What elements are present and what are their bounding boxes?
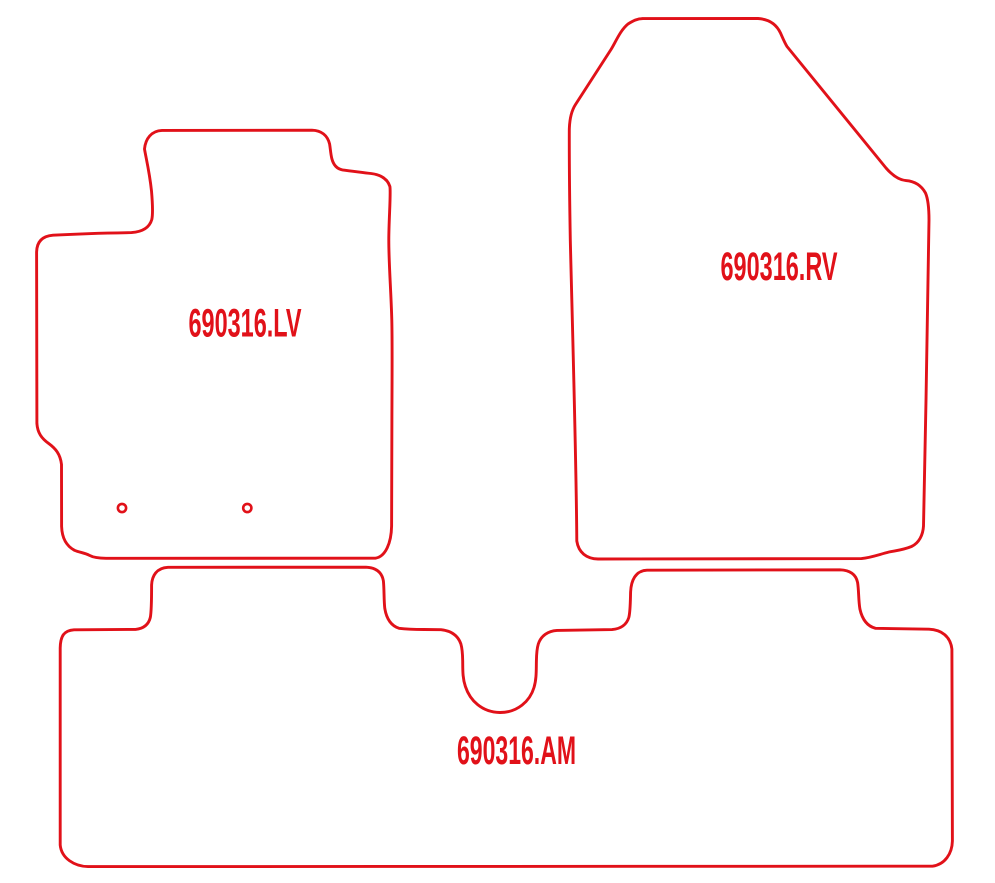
svg-text:690316.RV: 690316.RV — [721, 245, 838, 289]
svg-text:690316.AM: 690316.AM — [457, 729, 576, 773]
svg-text:690316.LV: 690316.LV — [189, 302, 302, 346]
